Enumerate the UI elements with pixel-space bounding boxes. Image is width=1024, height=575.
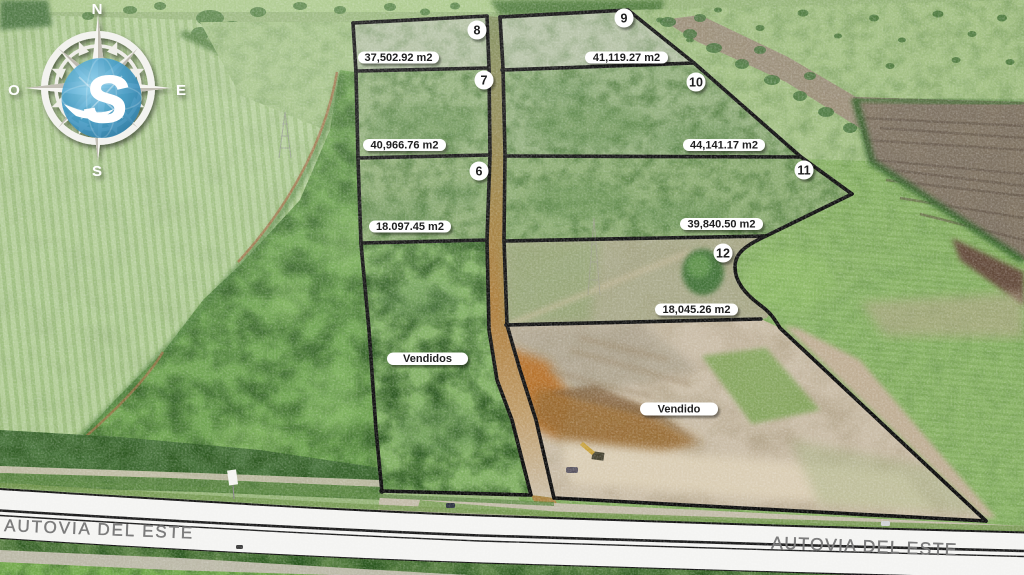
svg-text:8: 8: [474, 24, 481, 38]
svg-text:7: 7: [481, 74, 488, 88]
svg-text:Vendido: Vendido: [658, 404, 701, 416]
svg-text:S: S: [84, 62, 128, 136]
svg-text:Vendidos: Vendidos: [403, 353, 452, 365]
svg-text:10: 10: [689, 76, 703, 90]
svg-text:39,840.50 m2: 39,840.50 m2: [688, 219, 756, 231]
svg-text:18.097.45 m2: 18.097.45 m2: [376, 221, 444, 233]
svg-text:12: 12: [716, 247, 730, 261]
svg-text:6: 6: [476, 165, 483, 179]
svg-text:S: S: [92, 163, 102, 180]
svg-text:N: N: [92, 1, 103, 18]
svg-text:E: E: [176, 82, 186, 99]
svg-text:37,502.92 m2: 37,502.92 m2: [365, 52, 433, 64]
svg-text:18,045.26 m2: 18,045.26 m2: [663, 304, 731, 316]
svg-text:9: 9: [621, 12, 628, 26]
svg-text:41,119.27 m2: 41,119.27 m2: [593, 52, 660, 64]
svg-text:40,966.76 m2: 40,966.76 m2: [371, 140, 439, 152]
svg-text:44,141.17 m2: 44,141.17 m2: [690, 140, 758, 152]
svg-text:11: 11: [797, 164, 810, 178]
svg-text:O: O: [8, 82, 20, 99]
